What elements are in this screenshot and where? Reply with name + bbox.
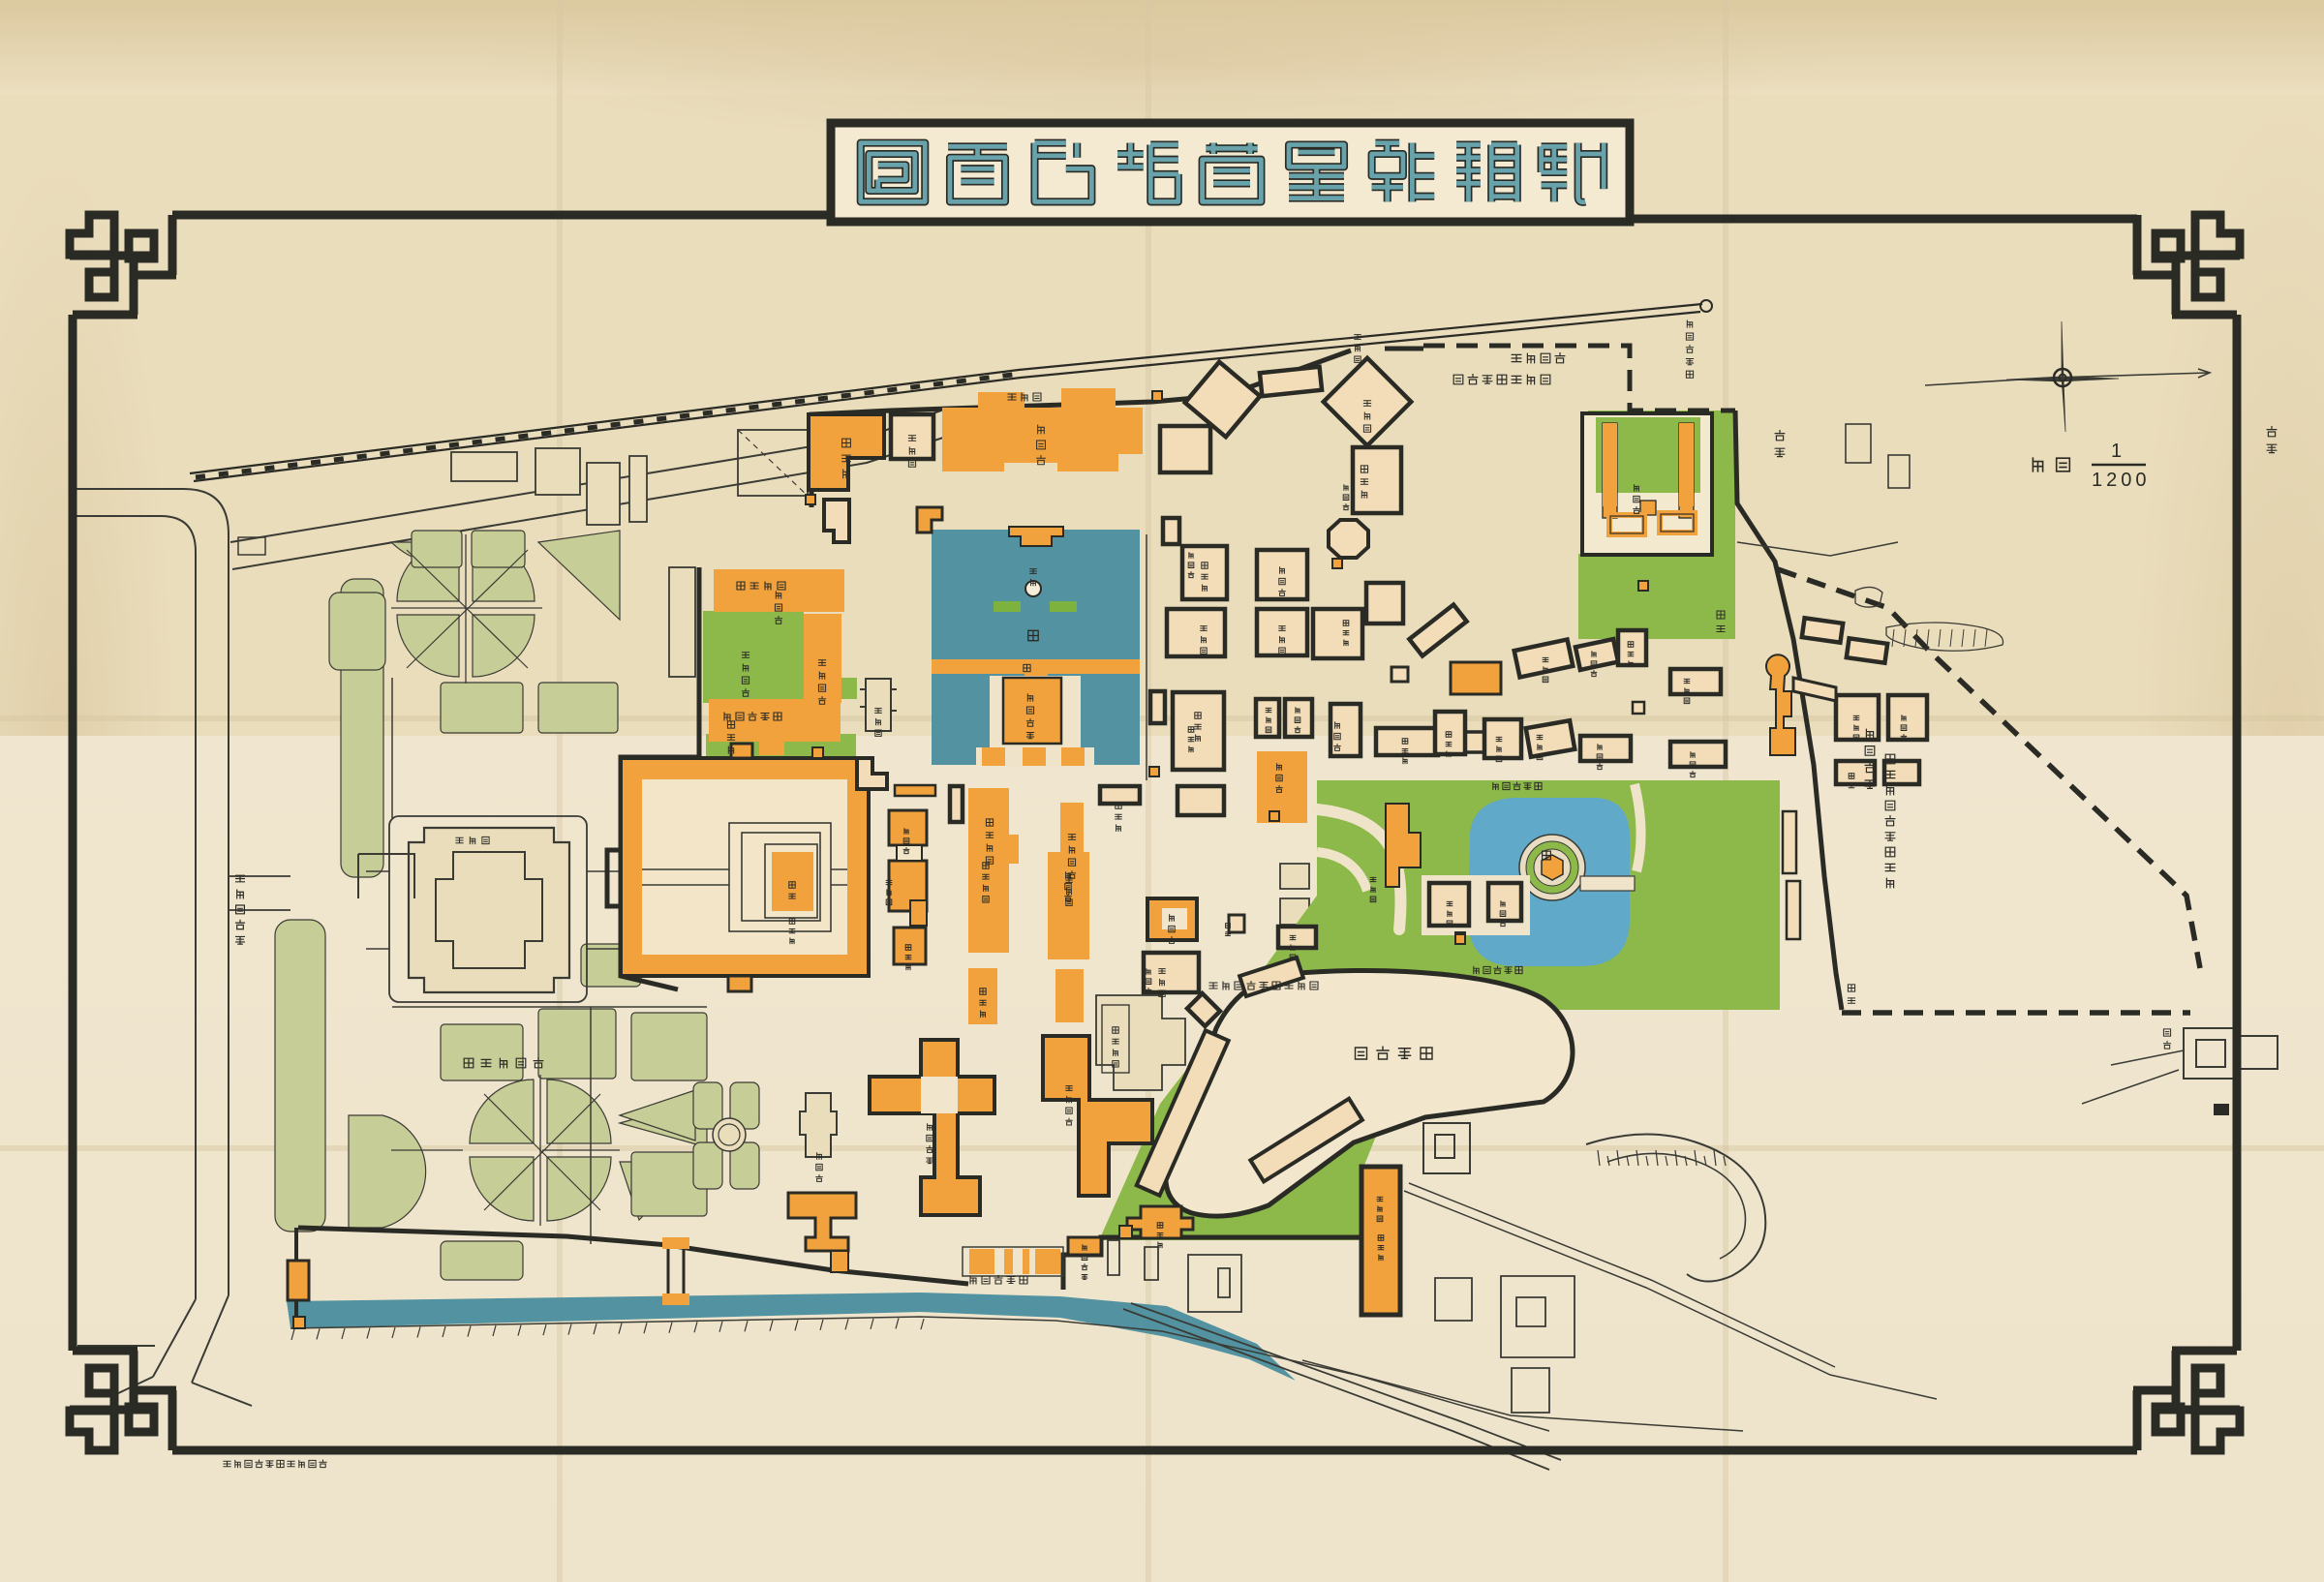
svg-text:1: 1 bbox=[2111, 441, 2122, 462]
svg-text:1200: 1200 bbox=[2092, 470, 2151, 491]
